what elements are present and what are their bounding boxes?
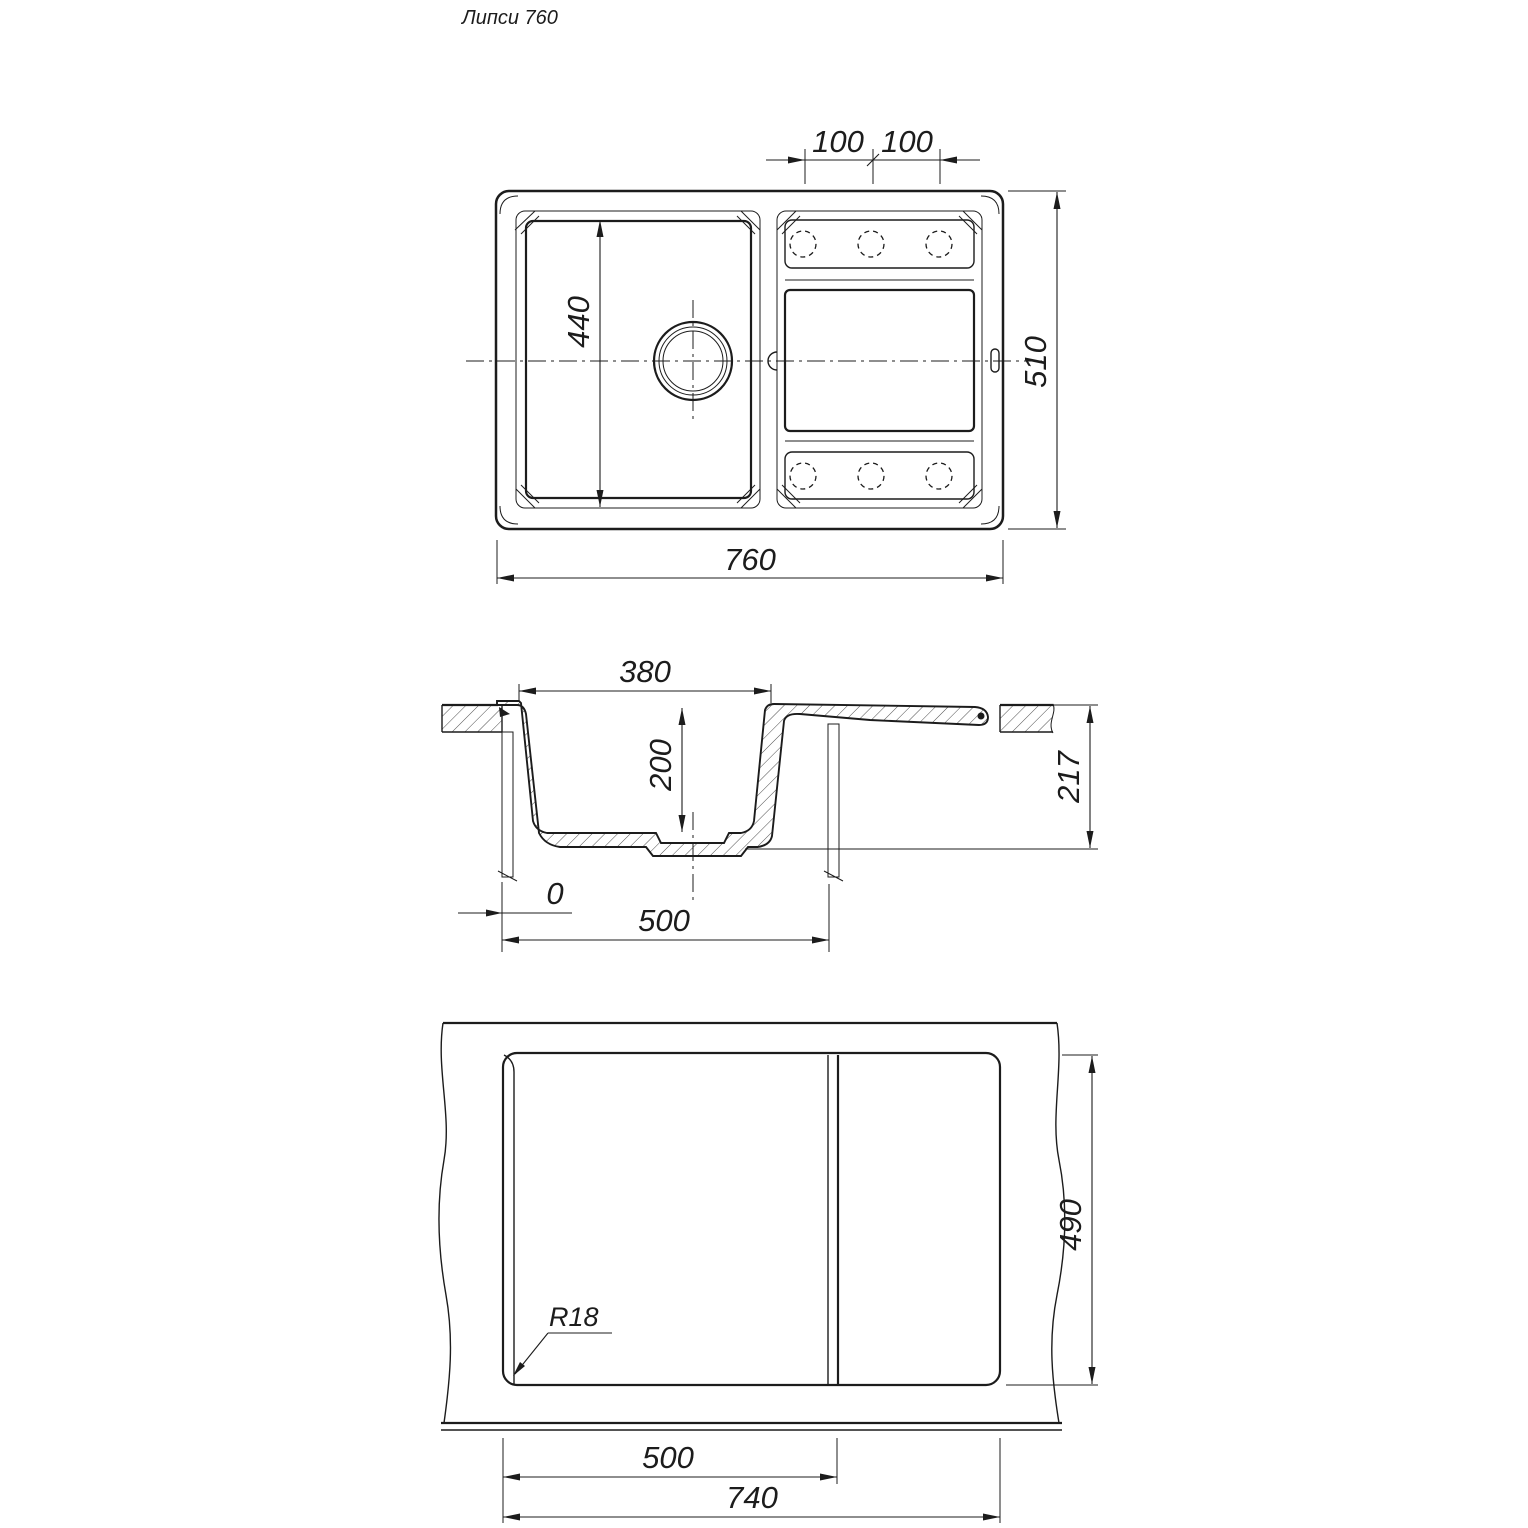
- drainboard: [777, 211, 982, 508]
- dim-bowl-depth: 200: [643, 739, 678, 792]
- tap-hole: [790, 463, 816, 489]
- dim-cutout-depth: 490: [1053, 1199, 1088, 1251]
- dim-corner-radius: R18: [549, 1302, 599, 1332]
- top-view: 100 100 440 760 510: [466, 124, 1066, 584]
- break-line-left: [439, 1023, 451, 1423]
- tap-hole: [926, 463, 952, 489]
- tap-hole: [790, 231, 816, 257]
- dim-bowl-length: 440: [561, 296, 596, 348]
- dim-bowl-width: 380: [619, 654, 671, 689]
- dim-cutout-width: 740: [726, 1480, 778, 1515]
- dim-overall-width: 760: [724, 542, 776, 577]
- technical-drawing: Липси 760: [0, 0, 1528, 1528]
- dim-overall-height: 217: [1051, 749, 1086, 803]
- top-view-dimensions: 100 100 440 760 510: [497, 124, 1066, 584]
- tap-hole: [858, 463, 884, 489]
- section-view: 380 200 217 0 500: [442, 654, 1098, 952]
- cabinet-panel-left: [498, 732, 517, 881]
- tap-hole: [926, 231, 952, 257]
- drainboard-bottom-strip: [785, 452, 974, 499]
- bottom-view-dimensions: 490 500 740: [503, 1055, 1098, 1523]
- cutout-inner-edge: [504, 1055, 514, 1385]
- sink-section-profile: [497, 701, 988, 856]
- edge-seal: [978, 713, 985, 720]
- rim-clip: [499, 707, 510, 717]
- section-dimensions: 380 200 217 0 500: [458, 654, 1098, 952]
- cabinet-panel-right: [824, 724, 843, 881]
- dim-hole-spacing-left: 100: [812, 124, 864, 159]
- dim-hole-spacing-right: 100: [881, 124, 933, 159]
- counter-right: [1000, 704, 1054, 733]
- bowl: [515, 211, 760, 508]
- rim-corner-arcs: [500, 196, 999, 524]
- dim-overall-depth: 510: [1018, 336, 1053, 388]
- bottom-view: R18 490 500 740: [439, 1023, 1098, 1523]
- counter-sheet: [439, 1023, 1065, 1430]
- dim-cabinet-width: 500: [638, 903, 690, 938]
- drawing-page: Липси 760: [0, 0, 1528, 1528]
- drainboard-top-strip: [785, 220, 974, 268]
- counter-left: [442, 705, 502, 732]
- tap-holes: [790, 231, 952, 489]
- page-title: Липси 760: [460, 7, 558, 29]
- dim-drain-offset: 500: [642, 1440, 694, 1475]
- tap-hole: [858, 231, 884, 257]
- cutout: [503, 1053, 1000, 1385]
- sink-outline: [496, 191, 1003, 529]
- dim-edge-offset: 0: [546, 876, 563, 911]
- leader-r18: R18: [513, 1302, 612, 1376]
- cutout-outline: [503, 1053, 1000, 1385]
